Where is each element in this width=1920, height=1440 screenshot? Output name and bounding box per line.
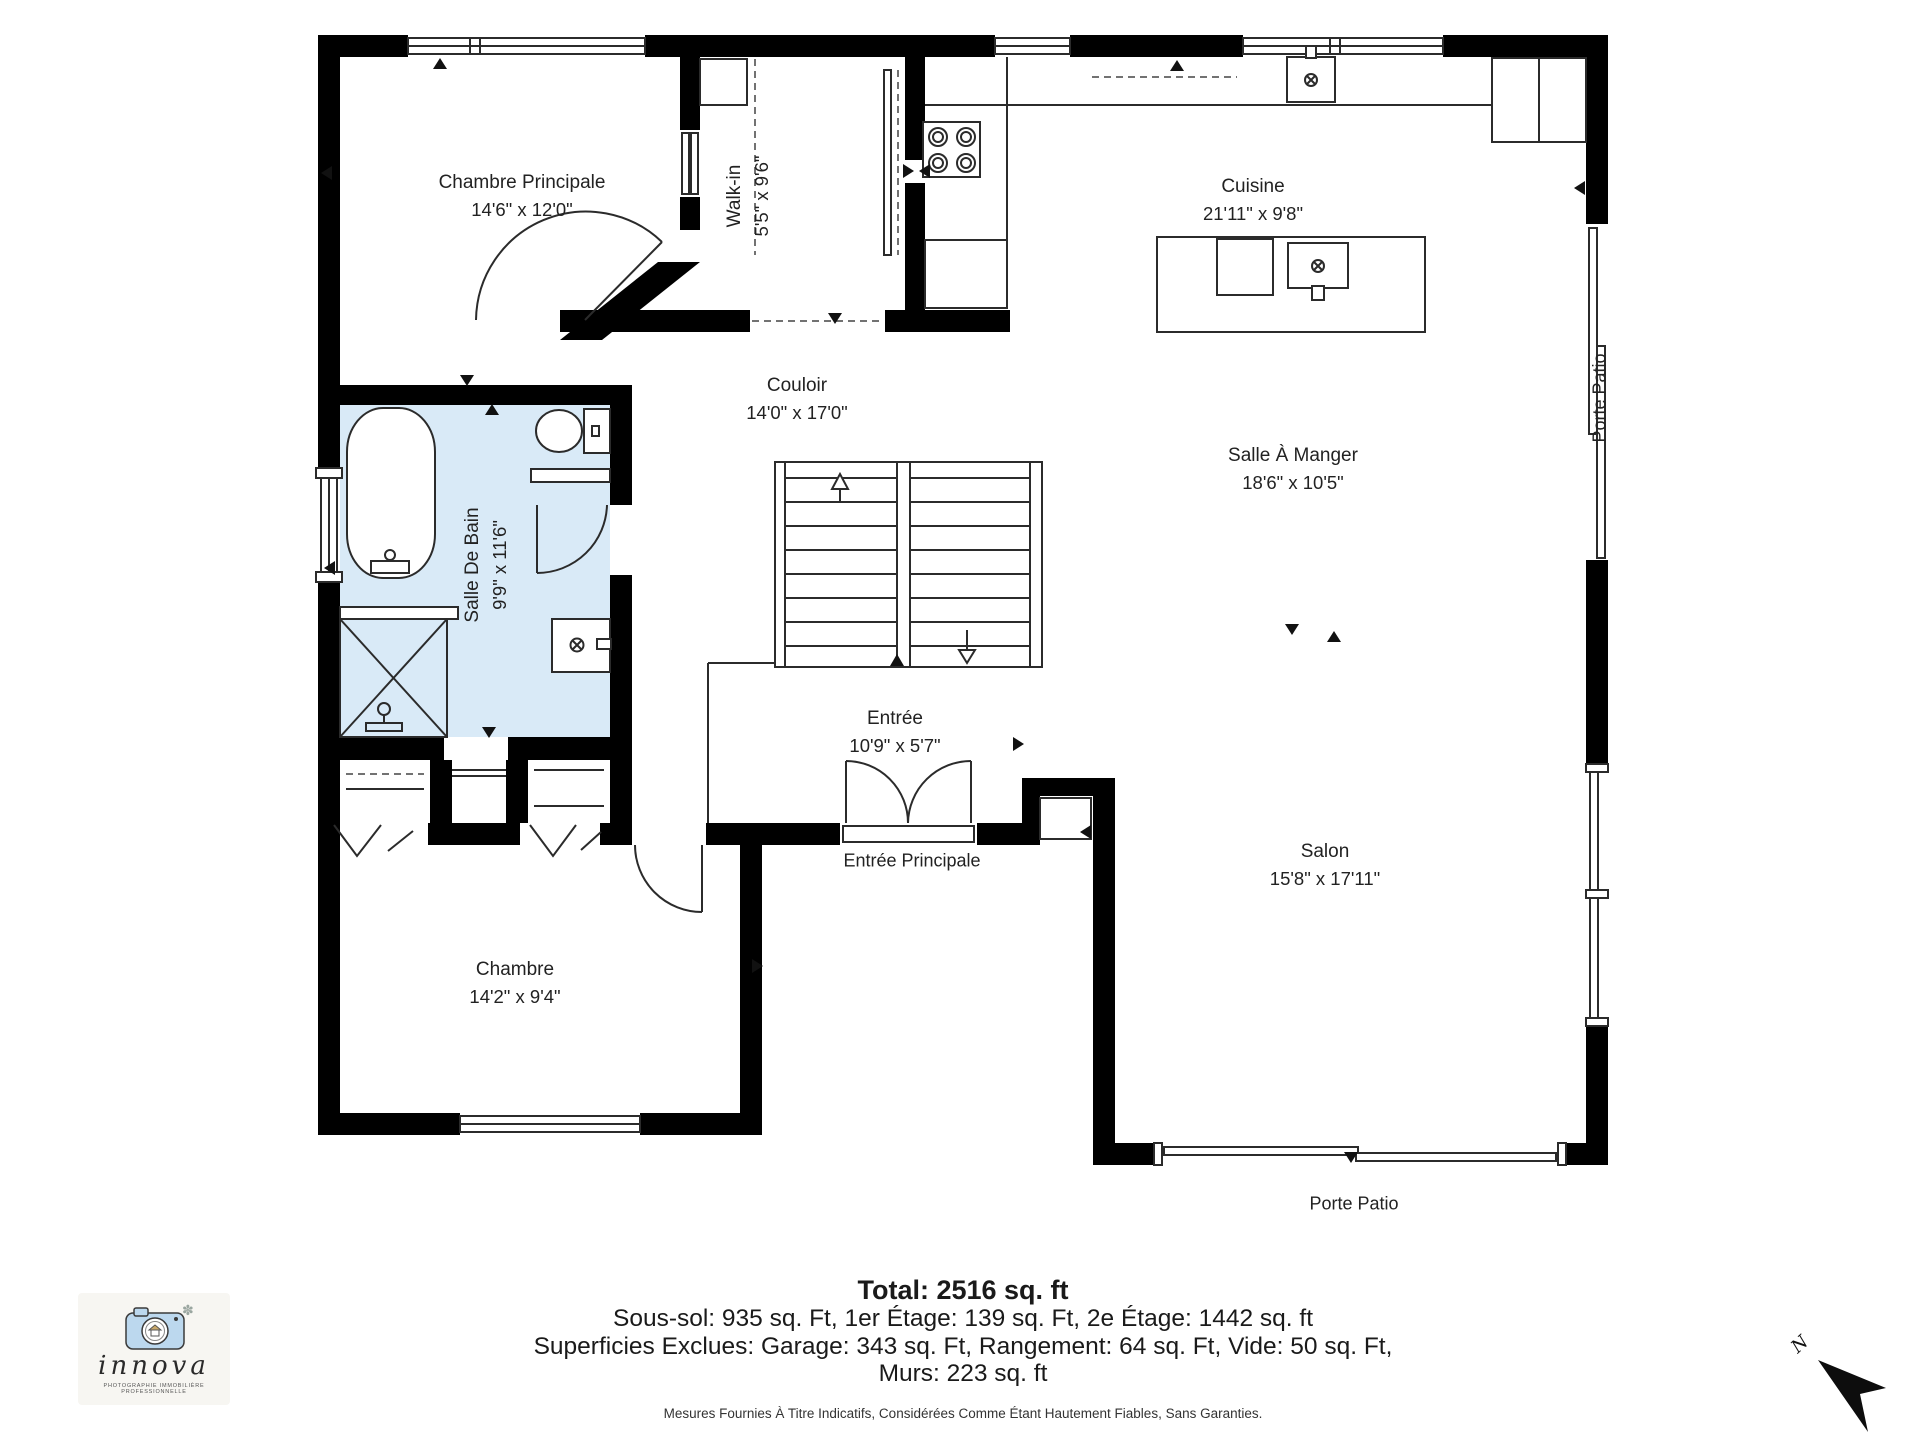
brand-tagline: Photographie Immobilière Professionnelle: [78, 1383, 230, 1395]
total-area: Total: 2516 sq. ft: [0, 1276, 1920, 1305]
kitchen-lower-counter: [925, 240, 1007, 308]
window-salon-2: [1590, 897, 1598, 1018]
room-dims: 9'9" x 11'6": [486, 507, 513, 622]
patio-door-bottom-panel-2: [1356, 1153, 1556, 1161]
bifold-door-left: [334, 825, 381, 856]
label-chambre: Chambre 14'2" x 9'4": [469, 956, 560, 1010]
label-porte-patio-bottom: Porte Patio: [1309, 1194, 1398, 1215]
excluded-areas: Superficies Exclues: Garage: 343 sq. Ft,…: [0, 1333, 1920, 1361]
label-salle-a-manger: Salle À Manger 18'6" x 10'5": [1228, 442, 1358, 496]
room-dims: 5'5" x 9'6": [748, 156, 775, 237]
totals-block: Total: 2516 sq. ft Sous-sol: 935 sq. Ft,…: [0, 1276, 1920, 1421]
room-dims: 14'0" x 17'0": [746, 399, 847, 426]
label-porte-patio-right: Porte Patio: [1590, 353, 1611, 442]
room-name: Walk-in: [721, 156, 749, 237]
label-cuisine: Cuisine 21'11" x 9'8": [1203, 173, 1303, 227]
label-entree: Entrée 10'9" x 5'7": [849, 705, 940, 759]
room-dims: 18'6" x 10'5": [1228, 469, 1358, 496]
room-dims: 10'9" x 5'7": [849, 732, 940, 759]
walkin-shelf: [884, 70, 891, 255]
north-arrow-icon: [1818, 1360, 1886, 1432]
floor-plan-graphic: [0, 0, 1920, 1440]
label-salle-de-bain: Salle De Bain 9'9" x 11'6": [459, 507, 513, 622]
room-name: Chambre Principale: [439, 169, 606, 197]
patio-door-bottom-panel-1: [1164, 1147, 1358, 1155]
bifold-door-right: [530, 825, 576, 856]
front-door-sill: [843, 826, 974, 842]
room-name: Salle À Manger: [1228, 442, 1358, 470]
island-dishwasher: [1217, 239, 1273, 295]
chambre-door-swing: [635, 845, 702, 912]
room-name: Salle De Bain: [459, 507, 487, 622]
room-name: Chambre: [469, 956, 560, 984]
stairs-down-arrow-icon: [959, 650, 975, 663]
bathroom-shelf: [340, 607, 458, 619]
floor-areas: Sous-sol: 935 sq. Ft, 1er Étage: 139 sq.…: [0, 1305, 1920, 1333]
bathroom-counter: [531, 469, 610, 482]
room-dims: 21'11" x 9'8": [1203, 200, 1303, 227]
label-couloir: Couloir 14'0" x 17'0": [746, 372, 847, 426]
walkin-shelf-box: [700, 59, 747, 105]
floorplan-page: Chambre Principale 14'6" x 12'0" Walk-in…: [0, 0, 1920, 1440]
room-name: Salon: [1270, 838, 1380, 866]
north-arrow: N: [1790, 1330, 1920, 1440]
bathtub-faucet: [371, 561, 409, 573]
window-salon-1: [1590, 772, 1598, 893]
room-dims: 14'6" x 12'0": [439, 196, 606, 223]
label-chambre-principale: Chambre Principale 14'6" x 12'0": [439, 169, 606, 223]
room-name: Entrée: [849, 705, 940, 733]
svg-text:✽: ✽: [182, 1303, 194, 1319]
room-dims: 15'8" x 17'11": [1270, 865, 1380, 892]
room-name: Couloir: [746, 372, 847, 400]
stairs-up-arrow-icon: [832, 474, 848, 489]
stairs: [775, 462, 1042, 667]
camera-icon: ✽: [78, 1301, 230, 1353]
label-entree-principale: Entrée Principale: [843, 851, 980, 872]
room-dims: 14'2" x 9'4": [469, 983, 560, 1010]
disclaimer: Mesures Fournies À Titre Indicatifs, Con…: [0, 1406, 1920, 1421]
pocket-door: [682, 133, 689, 194]
brand-name: innova: [78, 1353, 230, 1379]
room-name: Cuisine: [1203, 173, 1303, 201]
label-salon: Salon 15'8" x 17'11": [1270, 838, 1380, 892]
innova-logo: ✽ innova Photographie Immobilière Profes…: [78, 1293, 230, 1405]
toilet-bowl: [536, 410, 582, 452]
wall-areas: Murs: 223 sq. ft: [0, 1360, 1920, 1388]
label-walk-in: Walk-in 5'5" x 9'6": [721, 156, 775, 237]
